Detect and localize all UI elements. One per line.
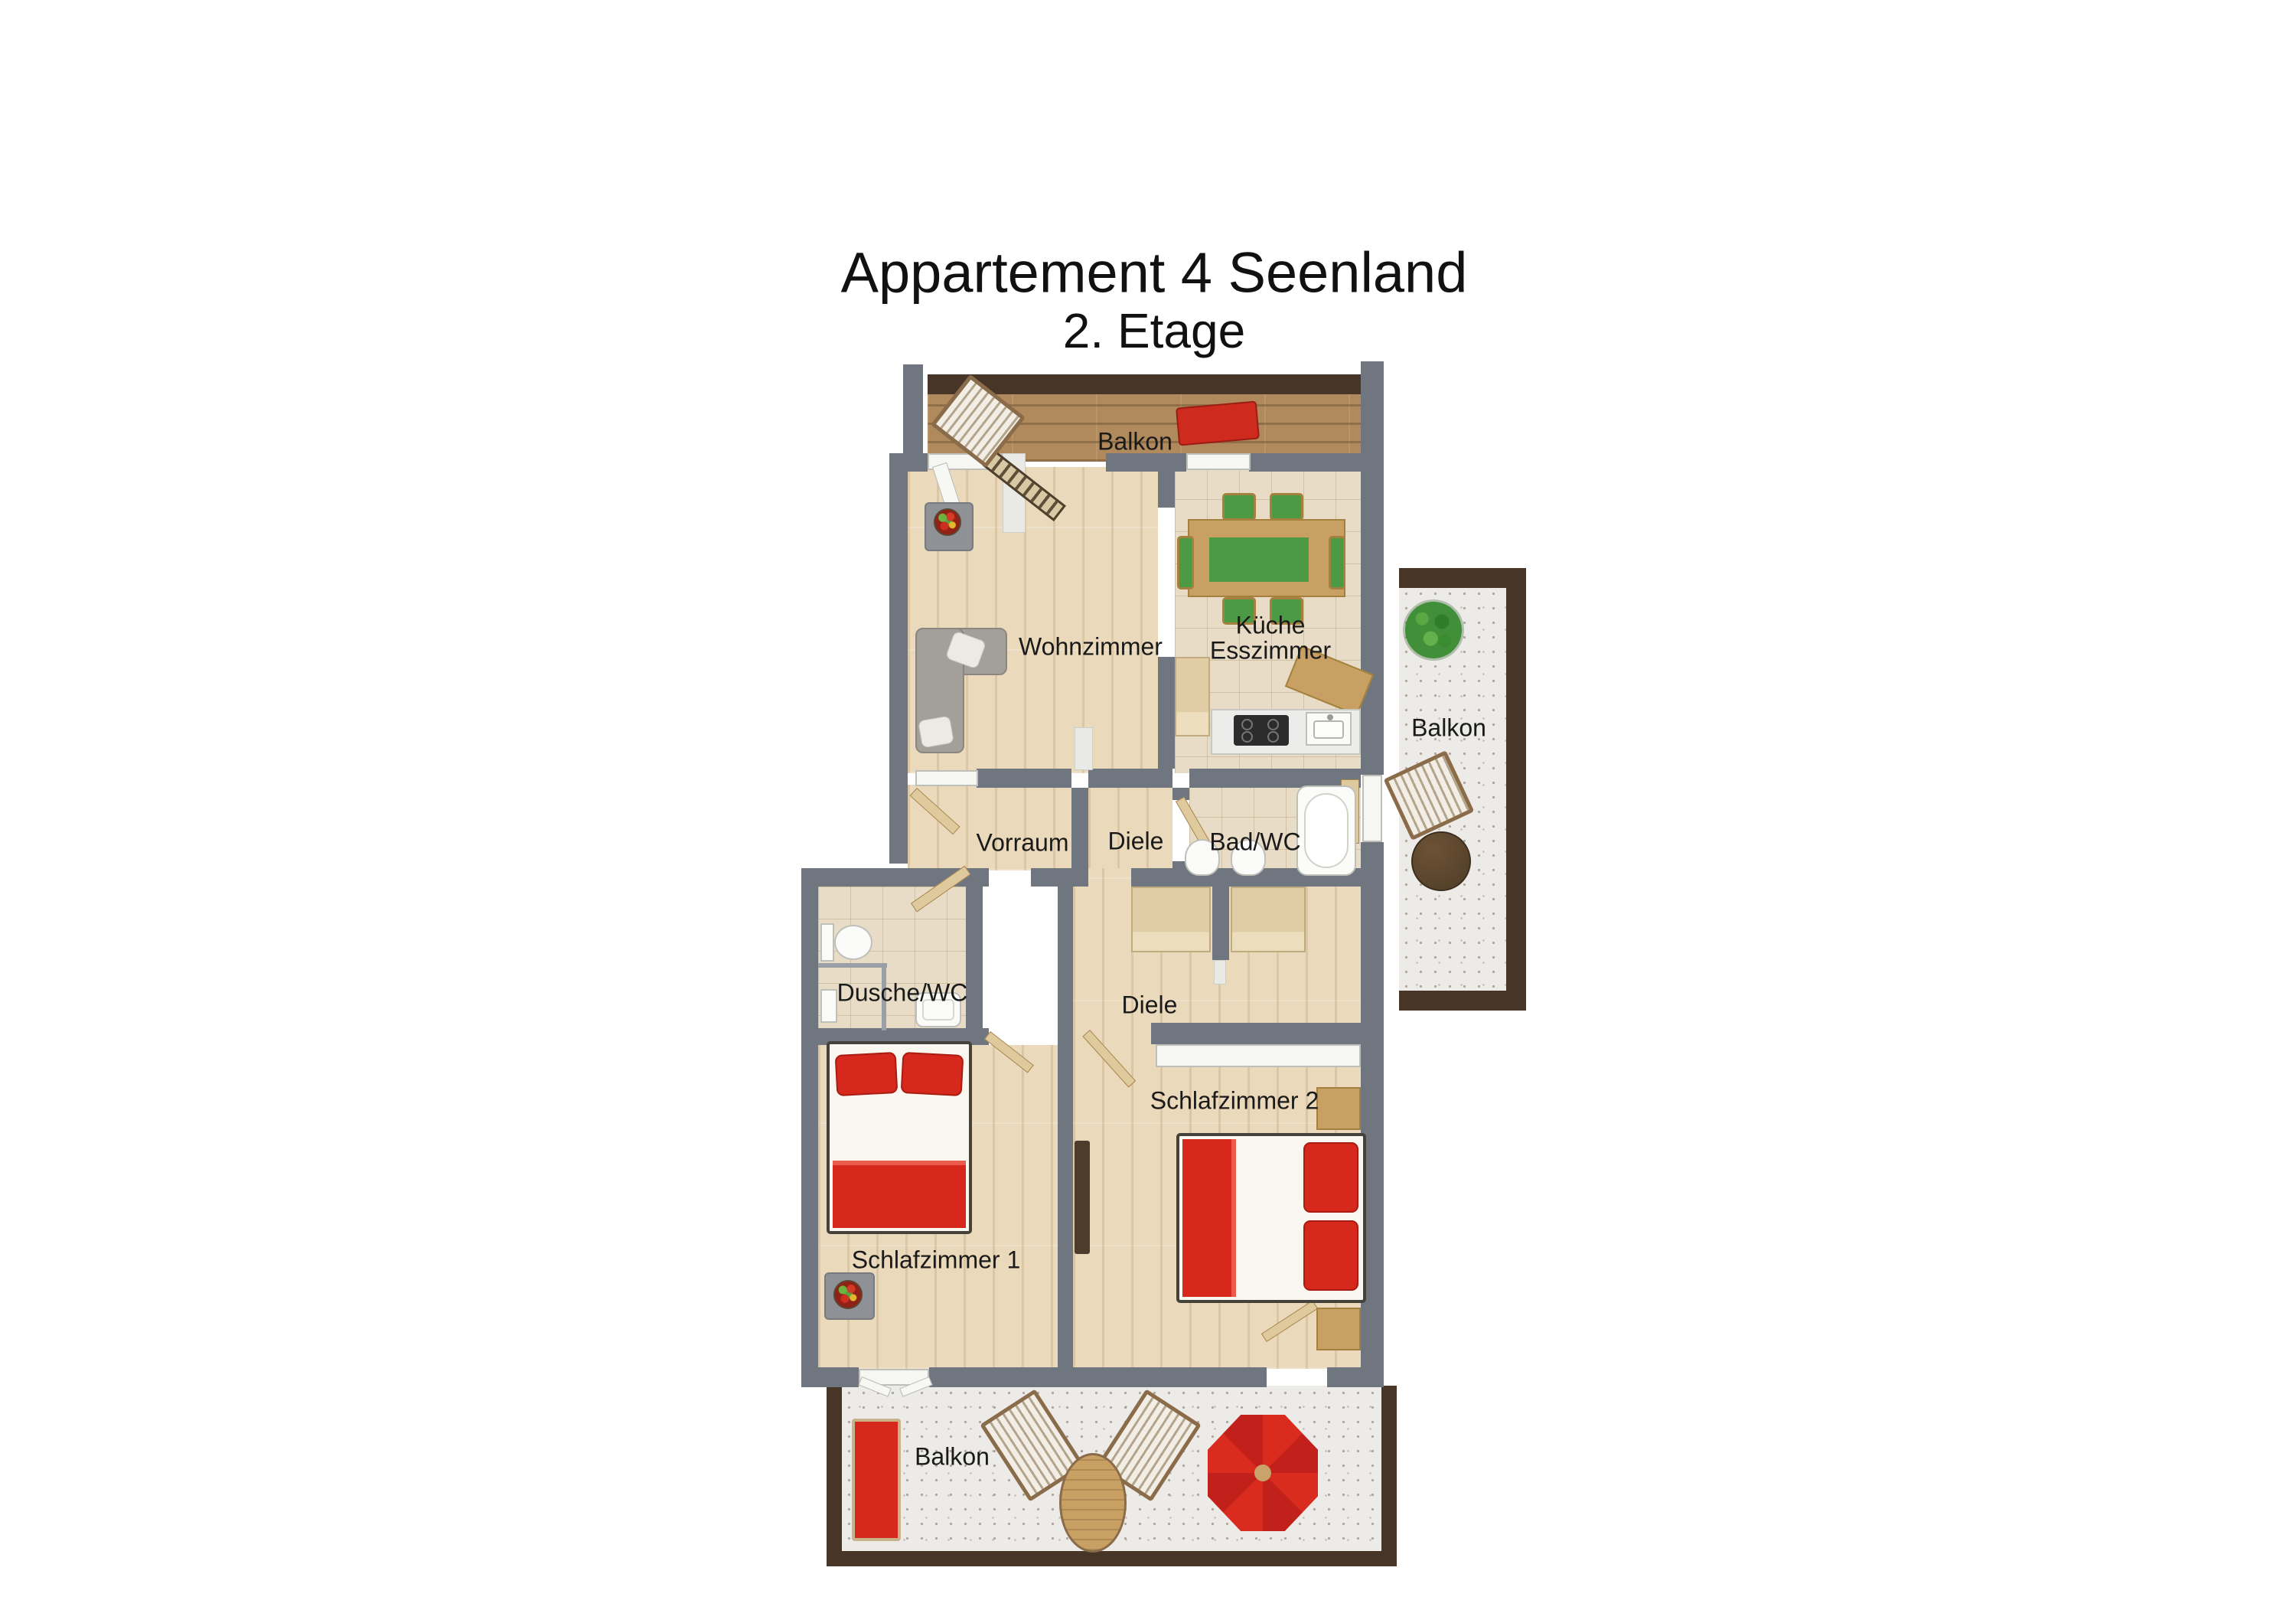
- wall: [1361, 361, 1384, 775]
- bathtub-basin: [1304, 793, 1349, 868]
- wall: [966, 887, 983, 1028]
- nightstand: [1316, 1308, 1361, 1350]
- bottom-balcony-railing-bottom: [827, 1551, 1397, 1566]
- cooktop: [1234, 715, 1289, 746]
- kitchen-sink: [1306, 712, 1352, 746]
- bottom-balcony-railing-left: [827, 1386, 842, 1566]
- floor-plan: Appartement 4 Seenland 2. Etage: [0, 0, 2296, 1623]
- dining-table: [1188, 519, 1345, 597]
- dining-chair: [1329, 536, 1345, 589]
- room-label-schlafzimmer-1: Schlafzimmer 1: [852, 1246, 1021, 1275]
- right-balcony-railing-right: [1506, 568, 1526, 1011]
- wall: [889, 467, 908, 864]
- plan-title-line2: 2. Etage: [1063, 302, 1245, 359]
- parasol: [1208, 1415, 1318, 1531]
- room-label-dusche-wc: Dusche/WC: [837, 979, 968, 1007]
- entry-door-frame: [915, 770, 978, 786]
- wall: [1158, 463, 1175, 508]
- shower-glass: [818, 963, 887, 968]
- bed-pillow: [1303, 1142, 1358, 1213]
- door-pocket: [1214, 960, 1226, 985]
- bedroom2-closet: [1156, 1044, 1361, 1067]
- bed-pillow: [901, 1052, 964, 1096]
- room-label-diele-lower: Diele: [1122, 991, 1178, 1020]
- wall: [1058, 880, 1073, 1369]
- sofa-pillow: [918, 716, 954, 749]
- bathtub: [1296, 785, 1356, 876]
- plan-title-line1: Appartement 4 Seenland: [841, 240, 1468, 305]
- nightstand: [1316, 1087, 1361, 1130]
- faucet-icon: [1327, 714, 1333, 720]
- burner-icon: [1267, 719, 1279, 730]
- bed-blanket: [833, 1161, 966, 1228]
- flower-bowl: [833, 1280, 863, 1309]
- wall: [1361, 842, 1384, 1387]
- dining-chair: [1222, 493, 1256, 521]
- vorraum-floor: [908, 785, 1071, 870]
- room-label-vorraum: Vorraum: [977, 829, 1069, 857]
- kitchen-window-frame: [1186, 453, 1251, 470]
- oval-table: [1059, 1453, 1127, 1553]
- red-bench: [1176, 400, 1260, 446]
- kitchen-tall-cabinet: [1175, 657, 1210, 736]
- table-runner: [1209, 537, 1309, 582]
- bed-pillow: [835, 1052, 899, 1096]
- wardrobe: [1231, 887, 1306, 952]
- wall: [818, 1367, 859, 1387]
- wall: [903, 364, 923, 467]
- wall: [1088, 769, 1172, 788]
- room-label-wohnzimmer: Wohnzimmer: [1019, 633, 1163, 661]
- wardrobe: [1131, 887, 1211, 952]
- room-label-bad-wc: Bad/WC: [1209, 828, 1300, 857]
- wall: [801, 887, 818, 1387]
- room-label-diele-upper: Diele: [1108, 828, 1164, 856]
- wall: [977, 769, 1071, 788]
- bed-pillow: [1303, 1220, 1358, 1291]
- room-label-balkon-right: Balkon: [1411, 714, 1486, 743]
- right-balcony-railing-bottom: [1399, 991, 1526, 1011]
- washbasin: [820, 989, 837, 1023]
- toilet: [834, 925, 872, 960]
- dining-chair: [1270, 493, 1303, 521]
- burner-icon: [1241, 731, 1253, 743]
- wall: [1327, 1367, 1361, 1387]
- sink-basin: [1313, 720, 1344, 739]
- room-label-schlafzimmer-2: Schlafzimmer 2: [1150, 1087, 1319, 1115]
- room-label-esszimmer: Esszimmer: [1210, 637, 1331, 665]
- burner-icon: [1267, 731, 1279, 743]
- double-bed: [827, 1041, 972, 1234]
- wall: [929, 1367, 1267, 1387]
- wall: [1071, 788, 1088, 868]
- toilet-tank: [820, 923, 834, 962]
- red-sun-lounger: [852, 1419, 901, 1541]
- bed-blanket: [1182, 1139, 1236, 1297]
- bottom-balcony-railing-right: [1381, 1386, 1397, 1566]
- burner-icon: [1241, 719, 1253, 730]
- room-label-balkon-bottom: Balkon: [915, 1443, 990, 1471]
- flower-bowl: [934, 508, 961, 536]
- diele-lower-floor: [1073, 868, 1131, 1369]
- potted-plant: [1405, 602, 1462, 658]
- balcony-door-frame: [1362, 775, 1382, 842]
- dining-chair: [1177, 536, 1194, 589]
- wall-stub: [1075, 727, 1093, 770]
- double-bed: [1176, 1133, 1366, 1303]
- hallway-dresser: [1075, 1141, 1090, 1254]
- room-label-balkon-top: Balkon: [1097, 428, 1172, 456]
- parasol-pole: [1254, 1465, 1271, 1481]
- wall: [1151, 1023, 1361, 1044]
- room-label-kueche: Küche: [1236, 612, 1306, 640]
- wall: [1158, 657, 1175, 769]
- wall: [1249, 453, 1361, 472]
- wall: [1212, 887, 1229, 960]
- round-table: [1411, 831, 1471, 891]
